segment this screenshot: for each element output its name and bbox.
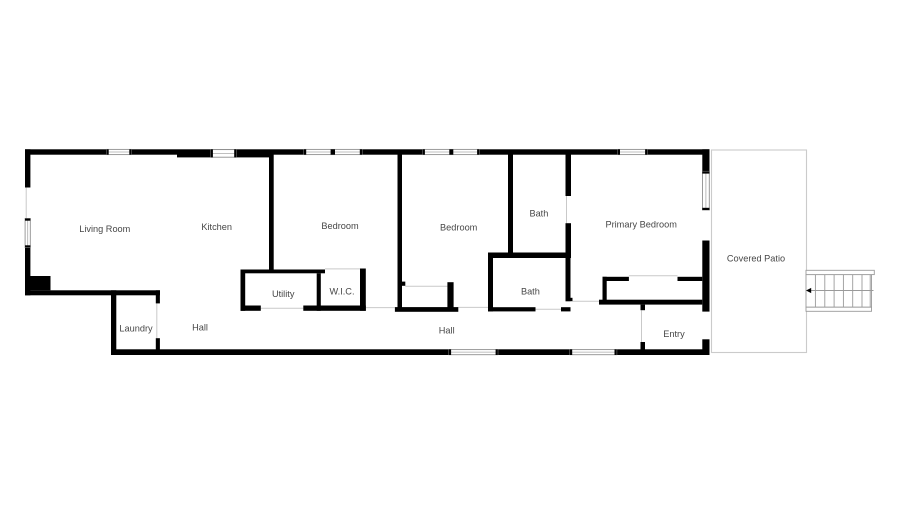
svg-text:Bedroom: Bedroom xyxy=(321,221,359,231)
svg-text:Hall: Hall xyxy=(192,322,208,332)
svg-text:Primary Bedroom: Primary Bedroom xyxy=(605,220,677,230)
svg-text:Laundry: Laundry xyxy=(119,324,153,334)
svg-text:Bath: Bath xyxy=(529,208,548,218)
svg-text:Living Room: Living Room xyxy=(79,224,130,234)
svg-text:Hall: Hall xyxy=(439,326,455,336)
svg-text:Kitchen: Kitchen xyxy=(201,222,232,232)
svg-text:Utility: Utility xyxy=(272,289,295,299)
svg-text:Entry: Entry xyxy=(663,329,685,339)
svg-text:W.I.C.: W.I.C. xyxy=(329,287,354,297)
svg-text:Bath: Bath xyxy=(521,286,540,296)
svg-text:Bedroom: Bedroom xyxy=(440,222,478,232)
svg-text:Covered Patio: Covered Patio xyxy=(727,253,785,263)
